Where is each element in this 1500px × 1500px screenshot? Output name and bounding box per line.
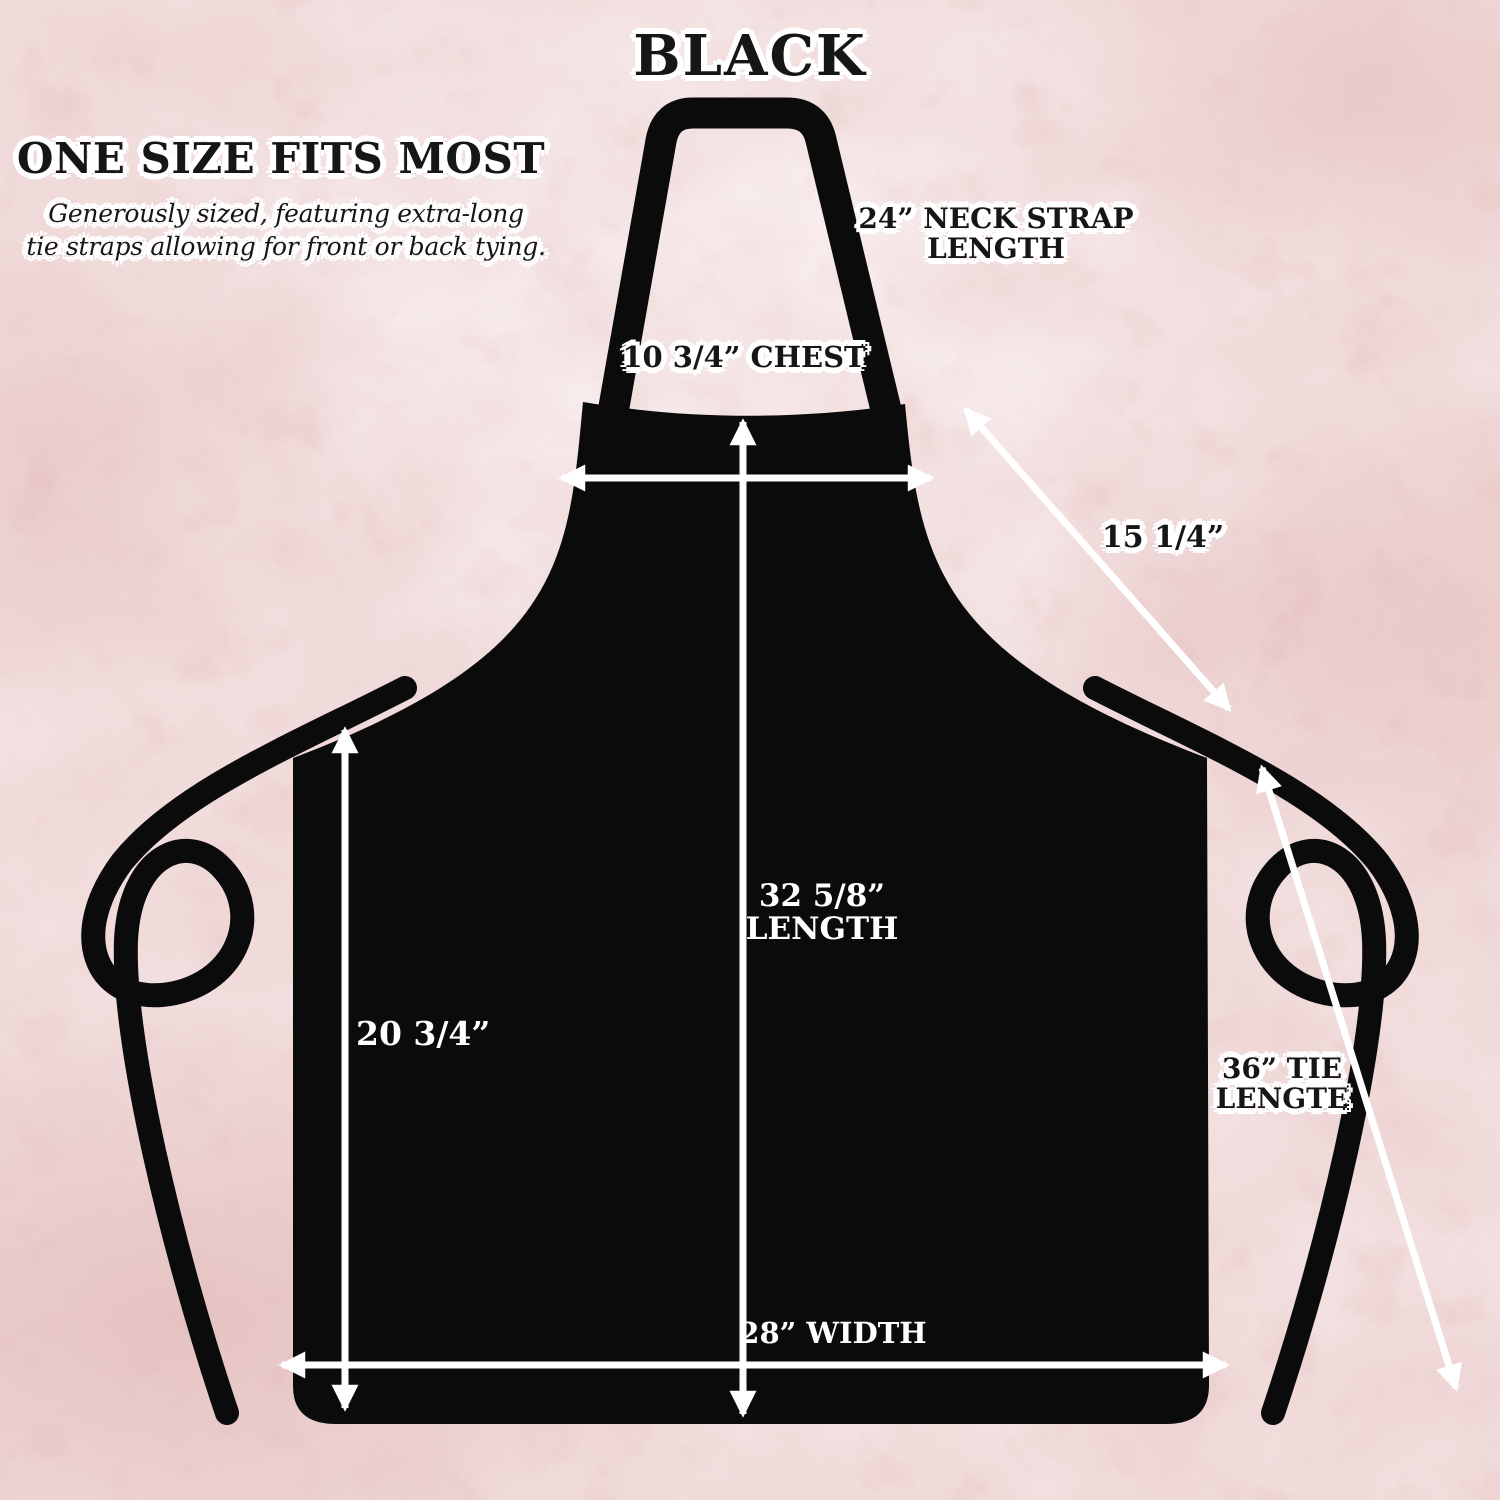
tie-length-line1: 36” TIE	[1216, 1054, 1349, 1084]
apron-length-line2: LENGTH	[746, 913, 899, 946]
neck-strap-length-label: 24” NECK STRAP LENGTH	[858, 204, 1133, 264]
one-size-subtitle-line2: tie straps allowing for front or back ty…	[26, 231, 545, 264]
one-size-subtitle-line1: Generously sized, featuring extra-long	[26, 198, 545, 231]
neck-strap-length-line2: LENGTH	[858, 234, 1133, 264]
tie-length-line2: LENGTE	[1216, 1084, 1349, 1114]
apron-length-line1: 32 5/8”	[746, 880, 899, 913]
chest-width-label: 10 3/4” CHEST	[622, 342, 865, 373]
neck-strap-diagonal-label: 15 1/4”	[1102, 522, 1224, 554]
apron-length-label: 32 5/8” LENGTH	[746, 880, 899, 947]
apron-width-label: 28” WIDTH	[739, 1318, 926, 1349]
side-length-label: 20 3/4”	[356, 1016, 490, 1052]
apron-size-chart: BLACK ONE SIZE FITS MOST Generously size…	[0, 0, 1500, 1500]
one-size-heading: ONE SIZE FITS MOST	[17, 136, 545, 181]
page-title: BLACK	[633, 26, 866, 86]
neck-strap-length-line1: 24” NECK STRAP	[858, 204, 1133, 234]
tie-length-label: 36” TIE LENGTE	[1216, 1054, 1349, 1114]
one-size-subtitle: Generously sized, featuring extra-long t…	[26, 198, 545, 263]
